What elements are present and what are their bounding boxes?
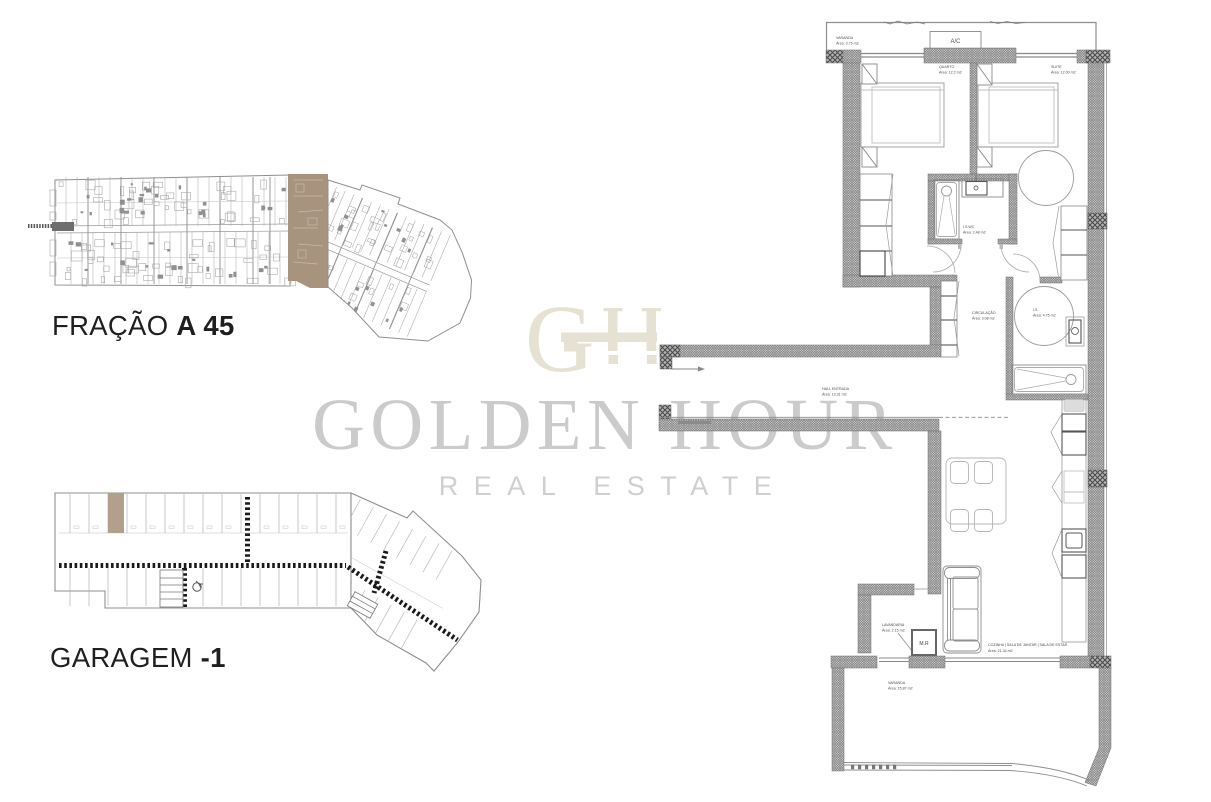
svg-text:HALL ENTRADA: HALL ENTRADA [822, 387, 850, 391]
svg-text:Área: 3.08 m2: Área: 3.08 m2 [972, 317, 995, 321]
svg-text:VARANDA: VARANDA [888, 681, 906, 685]
svg-text:Área: 12.00 m2: Área: 12.00 m2 [1051, 71, 1076, 75]
svg-text:I.S.WC: I.S.WC [963, 225, 975, 229]
svg-text:GARAGEM -1: GARAGEM -1 [50, 642, 226, 673]
svg-text:CIRCULAÇÃO: CIRCULAÇÃO [972, 310, 996, 315]
svg-text:Área: 2.48 m2: Área: 2.48 m2 [963, 231, 986, 235]
svg-text:VARANDA: VARANDA [836, 36, 854, 40]
svg-text:Área: 2.15 m2: Área: 2.15 m2 [882, 629, 905, 633]
svg-text:Área: 21.34 m2: Área: 21.34 m2 [988, 649, 1013, 653]
svg-text:M.R: M.R [919, 641, 929, 647]
svg-text:Área: 13.31 m2: Área: 13.31 m2 [822, 393, 847, 397]
svg-text:LAVANDARIA: LAVANDARIA [882, 623, 905, 627]
svg-text:Área: 3.75 m2: Área: 3.75 m2 [836, 42, 859, 46]
svg-text:Área: 15.87 m2: Área: 15.87 m2 [888, 687, 913, 691]
svg-text:QUARTO: QUARTO [939, 65, 954, 69]
svg-text:REAL ESTATE: REAL ESTATE [439, 471, 788, 501]
svg-text:Área: 4.75 m2: Área: 4.75 m2 [1033, 314, 1056, 318]
svg-text:Área: 12.2 m2: Área: 12.2 m2 [939, 71, 962, 75]
svg-text:A/C: A/C [950, 39, 961, 45]
svg-text:I.S.: I.S. [1033, 308, 1038, 312]
svg-text:COZINHA | SALA DE JANTAR | SAL: COZINHA | SALA DE JANTAR | SALA DE ESTAR [988, 643, 1068, 647]
svg-text:FRAÇÃO A 45: FRAÇÃO A 45 [52, 310, 235, 341]
svg-text:SUITE: SUITE [1051, 65, 1062, 69]
